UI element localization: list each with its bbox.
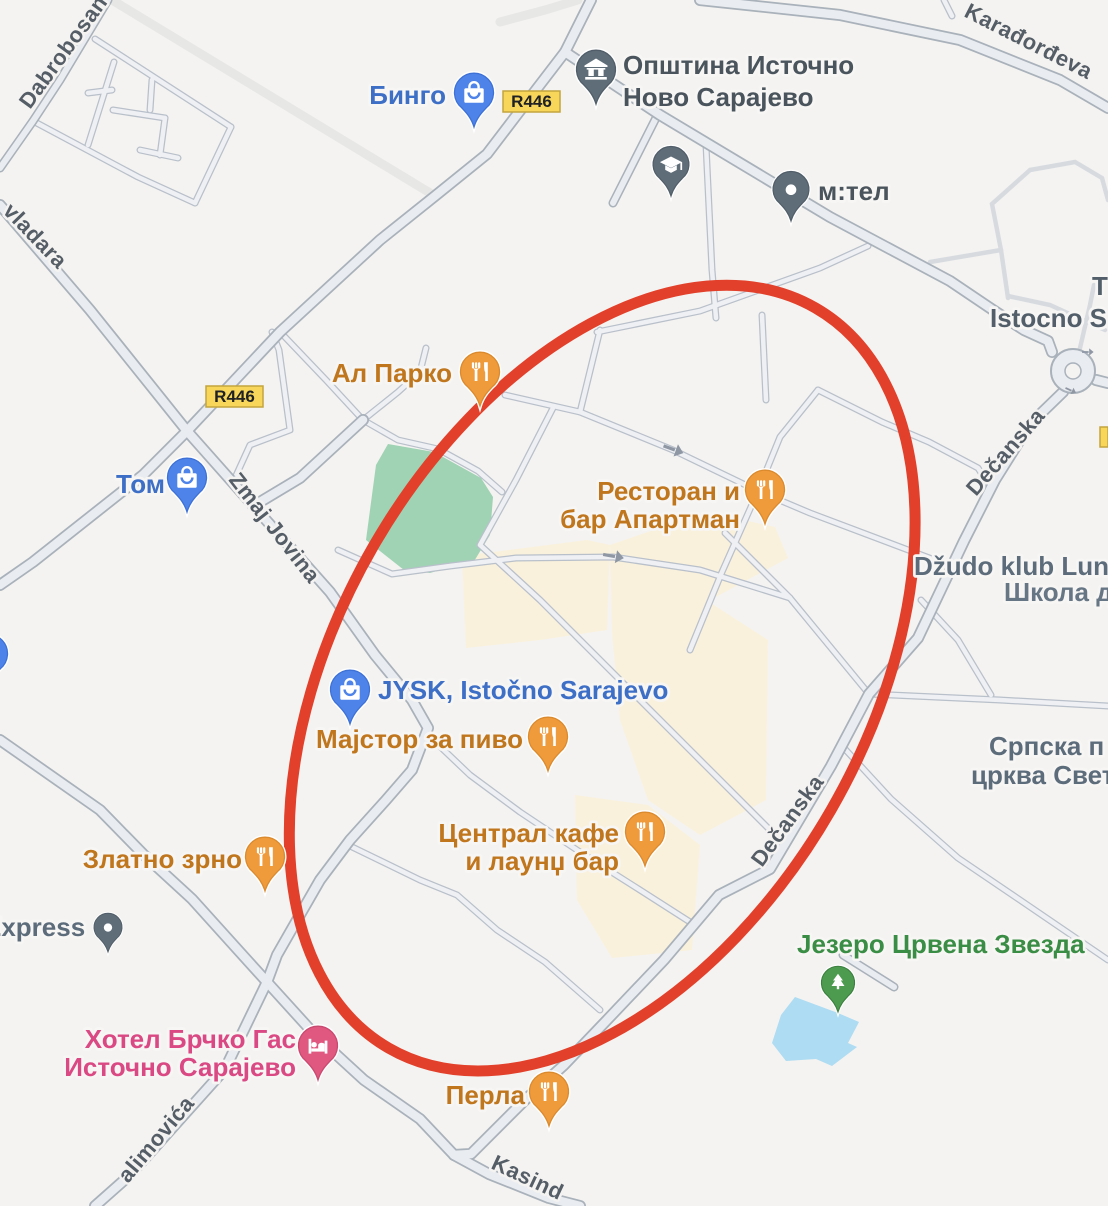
svg-text:R446: R446 xyxy=(511,92,552,111)
svg-text:Express: Express xyxy=(0,912,85,942)
svg-text:Источно Сарајево: Источно Сарајево xyxy=(64,1052,296,1082)
svg-text:м:тел: м:тел xyxy=(818,176,890,206)
svg-text:Ресторан и: Ресторан и xyxy=(597,476,740,506)
svg-text:Ал Парко: Ал Парко xyxy=(332,358,452,388)
svg-text:Школа дзн: Школа дзн xyxy=(1004,577,1108,607)
svg-text:Општина Источно: Општина Источно xyxy=(623,50,854,80)
svg-text:црква Свет: црква Свет xyxy=(971,760,1108,790)
svg-text:Златно зрно: Златно зрно xyxy=(83,844,242,874)
svg-text:Хотел Брчко Гас: Хотел Брчко Гас xyxy=(85,1024,296,1054)
svg-text:бар Апартман: бар Апартман xyxy=(560,504,740,534)
svg-text:Перла: Перла xyxy=(446,1080,526,1110)
svg-text:Том: Том xyxy=(116,469,165,499)
svg-text:Језеро Црвена Звезда: Језеро Црвена Звезда xyxy=(797,929,1085,959)
svg-text:Мајстор за пиво: Мајстор за пиво xyxy=(316,724,523,754)
svg-text:Централ кафе: Централ кафе xyxy=(438,818,619,848)
svg-text:Српска п: Српска п xyxy=(989,731,1104,761)
svg-text:JYSK, Istočno Sarajevo: JYSK, Istočno Sarajevo xyxy=(378,675,668,705)
svg-text:Ново Сарајево: Ново Сарајево xyxy=(623,82,814,112)
svg-text:Бинго: Бинго xyxy=(369,80,446,110)
svg-text:T: T xyxy=(1092,271,1108,301)
svg-text:и лаунџ бар: и лаунџ бар xyxy=(465,846,619,876)
svg-text:Istocno S: Istocno S xyxy=(990,303,1107,333)
svg-text:R446: R446 xyxy=(214,387,255,406)
